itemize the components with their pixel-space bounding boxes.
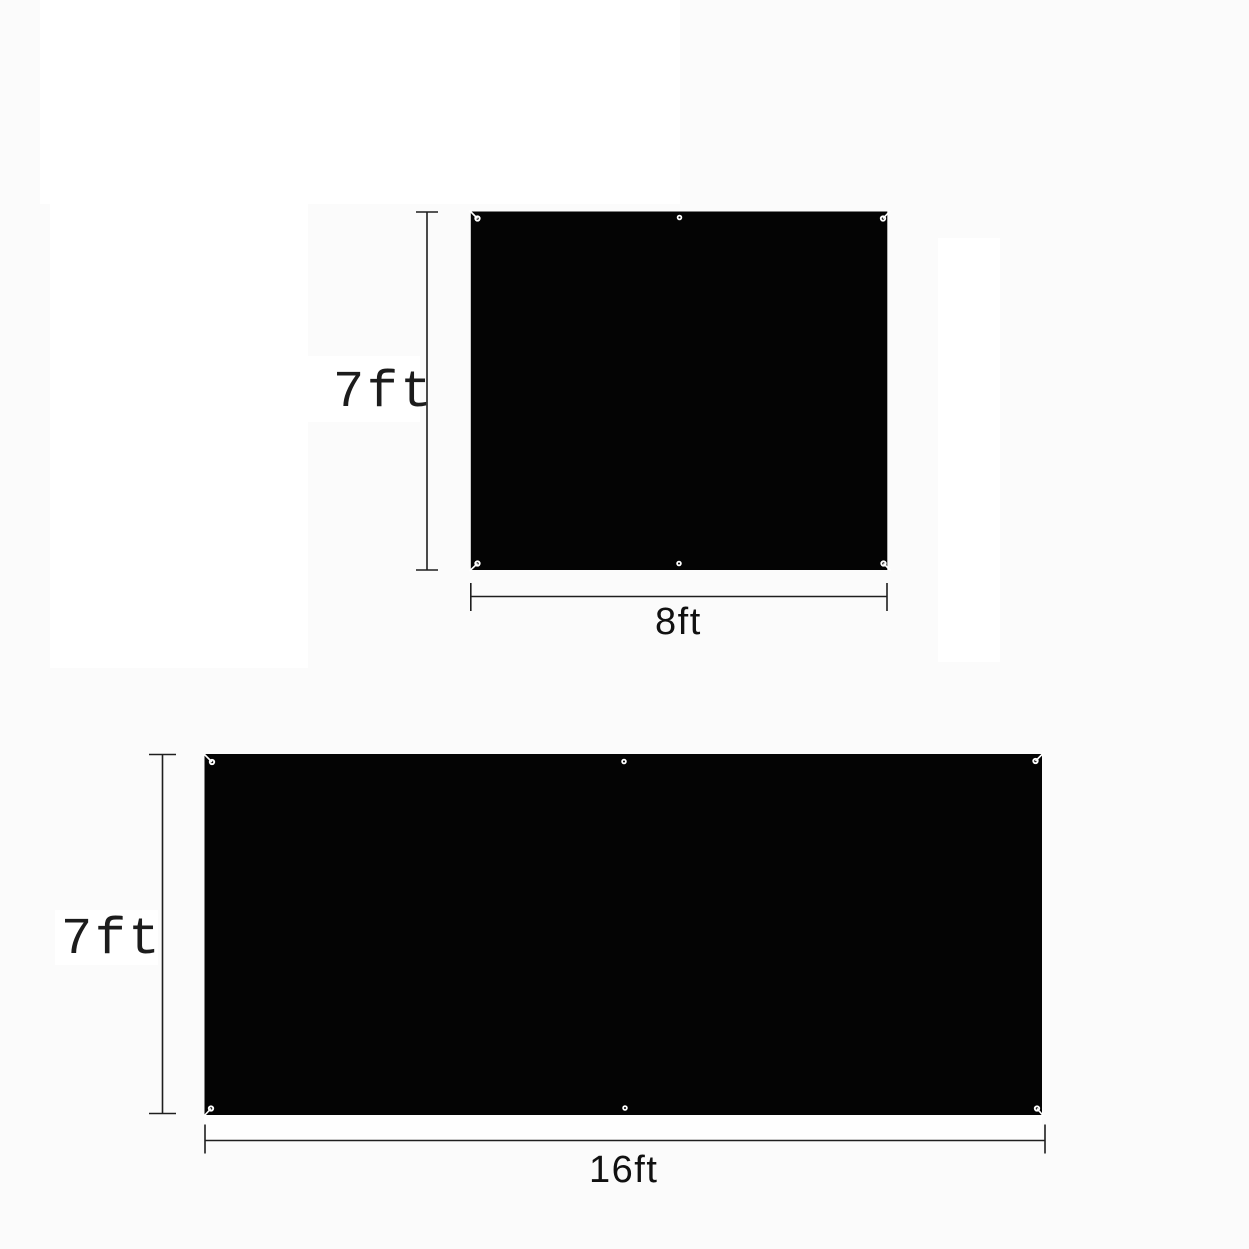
- svg-text:7ft: 7ft: [333, 363, 434, 422]
- svg-text:8ft: 8ft: [655, 601, 702, 643]
- svg-text:16ft: 16ft: [589, 1149, 658, 1191]
- svg-text:7ft: 7ft: [61, 910, 162, 969]
